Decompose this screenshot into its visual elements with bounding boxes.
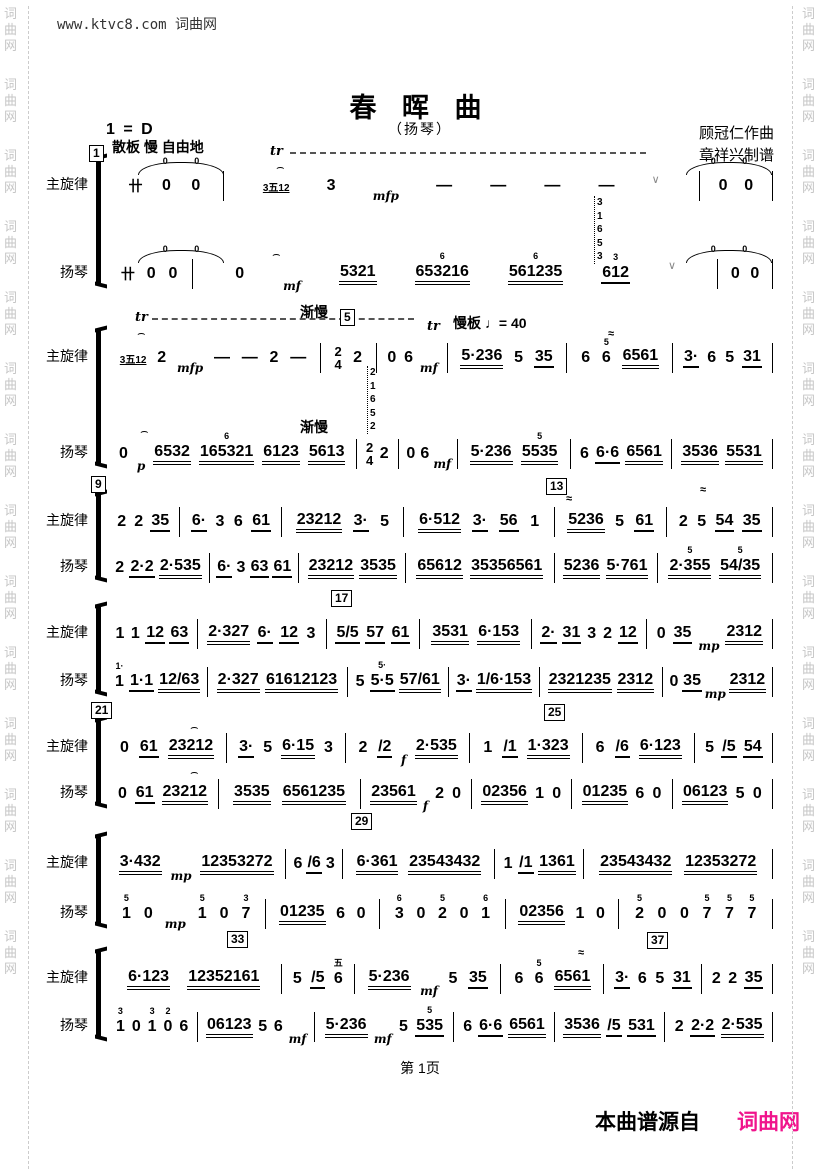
note-group: 0 — [451, 785, 462, 803]
note-group: 3 — [215, 513, 226, 531]
note-group: 12353272 — [684, 853, 757, 875]
note-group: 0 — [718, 177, 729, 195]
note-group: 0 — [652, 785, 663, 803]
note-group: 6·123 — [639, 737, 682, 759]
note-group: 5 — [724, 349, 735, 367]
barline — [672, 779, 673, 809]
barline — [398, 439, 399, 469]
measure: 35365531 — [673, 443, 771, 465]
measure: 0612350 — [674, 783, 771, 805]
note-group: 5 — [704, 739, 715, 757]
part-label: 主旋律 — [0, 967, 88, 987]
trill-mark: tr — [427, 319, 440, 334]
note-group: 6·512 — [418, 511, 461, 533]
arpeggio-digit: 2 — [370, 366, 376, 380]
part-label: 扬琴 — [0, 902, 88, 922]
yangqin-line: 扬琴061232123535656123523561f2002356100123… — [0, 774, 840, 814]
barline — [701, 964, 702, 994]
measure: 3五122mfp——2— — [108, 349, 319, 367]
note-group: 0 — [356, 905, 367, 923]
note-group: 3535 — [233, 783, 271, 805]
barline — [666, 507, 667, 537]
barline — [281, 964, 282, 994]
note-group: 1 — [574, 905, 585, 923]
note-group: 12353272 — [200, 853, 273, 875]
watermark-char: 词 — [4, 219, 28, 235]
note-group: 25 — [634, 905, 645, 923]
above-note-digit: 1· — [115, 662, 123, 672]
note-group: 15 — [121, 905, 132, 923]
note-group: 25 — [437, 905, 448, 923]
measure: 00 — [719, 265, 771, 283]
note-group: 2 — [727, 970, 738, 988]
note-group: 12352161 — [187, 968, 260, 990]
melody-line: 主旋律061232123·56·1532/2f2·5351/11·3236/66… — [0, 728, 840, 768]
measure: 11·1·112/63 — [108, 671, 206, 693]
mordent-mark: ≈ — [566, 493, 571, 505]
note-group: 0 — [415, 905, 426, 923]
note-group: 5321 — [339, 263, 377, 285]
watermark-char: 曲 — [802, 22, 826, 38]
note-group: 2 — [114, 559, 125, 577]
note-group: 31 — [672, 969, 692, 989]
watermark-char: 词 — [4, 148, 28, 164]
measure: 5/55761 — [328, 624, 418, 644]
note-group: 6 — [580, 349, 591, 367]
note-group: 54 — [715, 512, 735, 532]
barline — [469, 733, 470, 763]
measure: 6561235356561 — [407, 557, 553, 579]
watermark-char: 网 — [4, 393, 28, 409]
melody-line: 主旋律1112632·3276·1235/5576135316·1532·313… — [0, 614, 840, 654]
note-group: 6· — [191, 512, 207, 532]
note-group: /5 — [310, 969, 325, 989]
note-group: 3 — [323, 739, 334, 757]
note-group: 6·123 — [127, 968, 170, 990]
note-group: 2 — [602, 625, 613, 643]
measure: 35316·153 — [421, 623, 530, 645]
note-group: 6五 — [333, 970, 344, 988]
note-group: 5 — [355, 673, 366, 691]
measure: 150mp15073 — [108, 905, 264, 923]
watermark-char: 曲 — [4, 306, 28, 322]
barline — [285, 849, 286, 879]
above-note-digit: 6 — [533, 252, 538, 262]
part-label: 扬琴 — [0, 1015, 88, 1035]
barline — [571, 779, 572, 809]
measure: 6·36361 — [211, 558, 297, 578]
watermark-char: 曲 — [802, 235, 826, 251]
note-group: 02356 — [518, 903, 565, 925]
measure: 35356561235 — [220, 783, 359, 805]
note-group: 5236 — [567, 511, 605, 533]
note-group: 5·761 — [606, 557, 649, 579]
barline — [531, 619, 532, 649]
trill-wavy-line — [152, 318, 414, 320]
dash-note: — — [289, 349, 307, 367]
stave-measures: 22·22·5356·36361232123535656123535656152… — [108, 548, 774, 588]
arpeggio-digit: 6 — [370, 393, 376, 407]
fermata-mark: ⌢ — [137, 325, 146, 341]
harmonic-circles: 0 0 — [139, 244, 223, 254]
dynamic-marking: mfp — [177, 361, 203, 375]
measure: 6·5123·561 — [405, 511, 553, 533]
composer-credit: 顾冠仁作曲 — [699, 123, 774, 145]
barline — [356, 439, 357, 469]
measure: 2/2f2·535 — [347, 737, 469, 759]
note-group: 3· — [353, 512, 369, 532]
note-group: 6·6 — [478, 1017, 503, 1037]
note-group: 3 — [586, 625, 597, 643]
breath-mark: ∨ — [668, 259, 676, 272]
note-group: /6 — [306, 854, 321, 874]
note-group: 11· — [114, 673, 125, 691]
measure: 035mp2312 — [648, 623, 771, 645]
note-group: 6 — [403, 349, 414, 367]
note-group: 3·432 — [119, 853, 162, 875]
barline — [582, 733, 583, 763]
measure: 5·23655355 — [459, 443, 568, 465]
note-group: 6·15 — [281, 737, 315, 759]
dynamic-marking: mp — [170, 869, 191, 883]
rehearsal-number: 37 — [647, 932, 668, 949]
barline — [403, 507, 404, 537]
note-group: 02356 — [481, 783, 528, 805]
measure: 1/11361 — [496, 853, 582, 875]
tempo-marking: 散板 慢 自由地 — [112, 137, 204, 157]
watermark-char: 网 — [4, 819, 28, 835]
barline — [218, 779, 219, 809]
note-group: 0 — [657, 905, 668, 923]
watermark-char: 网 — [802, 819, 826, 835]
dynamic-marking: f — [401, 753, 406, 767]
above-note-digit: 5· — [378, 661, 386, 671]
note-group: 0 — [219, 905, 230, 923]
measure: 232123535 — [300, 557, 404, 579]
dynamic-marking: mp — [698, 639, 719, 653]
trill-wavy-line — [290, 152, 646, 154]
above-note-digit: 5 — [738, 546, 743, 556]
note-group: 6561 — [554, 968, 592, 990]
note-group: 35 — [682, 672, 702, 692]
watermark-char: 曲 — [802, 93, 826, 109]
harmonic-tie: 0 0 — [686, 162, 772, 175]
above-note-digit: 5 — [749, 894, 754, 904]
above-note-digit: 5 — [687, 546, 692, 556]
watermark-char: 词 — [802, 219, 826, 235]
stave-measures: 061232123·56·1532/2f2·5351/11·3236/66·12… — [108, 728, 774, 768]
measure: 3·6531 — [674, 348, 771, 368]
note-group: 5 — [262, 739, 273, 757]
note-group: 2·535 — [415, 737, 458, 759]
note-group: 6 — [595, 739, 606, 757]
harmonic-tie: 0 0 — [138, 250, 224, 263]
measure: 0123560 — [267, 903, 378, 925]
note-group: 6 — [419, 445, 430, 463]
scrape-mark: 卄 — [121, 264, 135, 284]
note-group: 61612123 — [265, 671, 338, 693]
brand-link[interactable]: 词曲网 — [737, 1106, 800, 1136]
measure: 5·236mf535 — [356, 968, 499, 990]
watermark-char: 词 — [802, 77, 826, 93]
yangqin-line: 扬琴150mp150730123560360250160235610250075… — [0, 894, 840, 934]
note-group: 2 — [379, 445, 390, 463]
measure: 232123·5 — [283, 511, 402, 533]
watermark-char: 网 — [802, 393, 826, 409]
note-group: 0 — [752, 785, 763, 803]
rehearsal-number: 21 — [91, 702, 112, 719]
note-group: 5·236 — [368, 968, 411, 990]
measure: 23212352312 — [541, 671, 661, 693]
note-group: 12 — [145, 624, 165, 644]
note-group: 0 — [143, 905, 154, 923]
barline — [354, 964, 355, 994]
note-group: 13 — [115, 1018, 126, 1036]
note-group: 65 — [601, 349, 612, 367]
note-group: 5531 — [725, 443, 763, 465]
mordent-mark: ≈ — [608, 328, 613, 340]
note-group: 1 — [503, 855, 514, 873]
note-group: 23212 — [162, 783, 209, 805]
barline — [326, 619, 327, 649]
part-label: 主旋律 — [0, 174, 88, 194]
measure: 卄00 — [108, 264, 191, 284]
measure: 22·22·535 — [666, 1016, 771, 1038]
watermark-char: 词 — [4, 77, 28, 93]
note-group: 3· — [472, 512, 488, 532]
barline — [226, 733, 227, 763]
barline — [603, 964, 604, 994]
note-group: 35 — [744, 969, 764, 989]
note-group: 6·361 — [356, 853, 399, 875]
measure: 卄00 — [108, 176, 222, 196]
note-group: 65 — [534, 970, 545, 988]
watermark-char: 曲 — [4, 377, 28, 393]
rehearsal-number: 33 — [227, 931, 248, 948]
watermark-char: 曲 — [4, 590, 28, 606]
watermark-char: 曲 — [802, 306, 826, 322]
arpeggio-chord: 31653 — [594, 196, 603, 264]
note-group: 0 — [167, 265, 178, 283]
note-group: 0 — [117, 785, 128, 803]
measure: 3·56·153 — [228, 737, 344, 759]
stave-measures: 150mp15073012356036025016023561025007575… — [108, 894, 774, 934]
barline — [197, 1012, 198, 1042]
barline — [419, 619, 420, 649]
watermark-char: 网 — [4, 322, 28, 338]
note-group: 531 — [627, 1017, 656, 1037]
measure: 0123560 — [573, 783, 670, 805]
dynamic-marking: mp — [705, 687, 726, 701]
measure: 3·1/6·153 — [450, 671, 538, 693]
barline — [179, 507, 180, 537]
note-group: 2 — [674, 1018, 685, 1036]
harmonic-circles: 0 0 — [687, 244, 771, 254]
note-group: /1 — [502, 738, 517, 758]
note-group: 5·55· — [370, 672, 395, 692]
barline — [657, 553, 658, 583]
measure: 2·32761612123 — [209, 671, 345, 693]
barline — [223, 171, 224, 201]
note-group: 5 — [257, 1018, 268, 1036]
barline — [554, 553, 555, 583]
melody-line: 主旋律3五122mfp——2—24206mf5·23653566565613·6… — [0, 338, 840, 378]
measure: 2500757575 — [620, 905, 771, 923]
dash-note: — — [597, 177, 615, 195]
barline — [772, 849, 773, 879]
dynamic-marking: mf — [283, 279, 301, 293]
measure: 6/66·123 — [584, 737, 693, 759]
time-signature: 24 — [334, 345, 341, 371]
note-group: 6 — [579, 445, 590, 463]
above-note-digit: 5 — [427, 1006, 432, 1016]
note-group: 0 — [234, 265, 245, 283]
measure: 06mf — [400, 445, 456, 463]
barline — [298, 553, 299, 583]
arpeggio-digit: 3 — [597, 196, 603, 210]
barline — [447, 343, 448, 373]
barline — [347, 667, 348, 697]
note-group: 65612 — [416, 557, 463, 579]
note-group: 6 — [706, 349, 717, 367]
note-group: 0 — [656, 625, 667, 643]
rehearsal-number: 9 — [91, 476, 106, 493]
arpeggio-digit: 3 — [597, 250, 603, 264]
measure: 36025016 — [381, 905, 504, 923]
barline — [664, 1012, 665, 1042]
fermata-mark: ⌢ — [140, 423, 149, 439]
source-attribution: 本曲谱源自 — [595, 1106, 700, 1136]
yangqin-line: 扬琴22·22·5356·363612321235356561235356561… — [0, 548, 840, 588]
note-group: 6· — [216, 558, 232, 578]
barline — [772, 171, 773, 201]
above-note-digit: 5 — [537, 959, 542, 969]
note-group: 5 — [513, 349, 524, 367]
arpeggio-chord: 21652 — [367, 366, 376, 434]
note-group: 0 — [749, 265, 760, 283]
watermark-char: 词 — [4, 6, 28, 22]
note-group: 6 — [273, 1018, 284, 1036]
yangqin-line: 扬琴130130260612356mf5·236mf5535566·665613… — [0, 1007, 840, 1047]
measure: 2235 — [108, 512, 178, 532]
time-signature: 24 — [366, 441, 373, 467]
barline — [699, 171, 700, 201]
note-group: 5 — [696, 513, 707, 531]
barline — [320, 343, 321, 373]
barline — [583, 849, 584, 879]
part-label: 扬琴 — [0, 262, 88, 282]
barline — [772, 964, 773, 994]
fermata-mark: ⌢ — [190, 719, 199, 735]
barline — [772, 619, 773, 649]
arpeggio-digit: 2 — [370, 420, 376, 434]
dynamic-marking: f — [423, 799, 428, 813]
note-group: 35 — [534, 348, 554, 368]
above-note-digit: 5 — [704, 894, 709, 904]
note-group: 1 — [529, 513, 540, 531]
note-group: 6 — [462, 1018, 473, 1036]
watermark-group: 词曲网 — [4, 290, 28, 338]
note-group: 06123 — [206, 1016, 253, 1038]
note-group: 36 — [394, 905, 405, 923]
note-group: 2·2 — [129, 558, 154, 578]
rehearsal-number: 13 — [546, 478, 567, 495]
harmonic-tie: 0 0 — [138, 162, 224, 175]
arpeggio-digit: 1 — [370, 380, 376, 394]
note-group: 06123 — [682, 783, 729, 805]
note-group: 5355 — [415, 1017, 444, 1037]
arpeggio-digit: 6 — [597, 223, 603, 237]
note-group: 73 — [241, 905, 252, 923]
stave-measures: 0p653216532166123561324206mf5·2365535566… — [108, 434, 774, 474]
measure: 5·236mf55355 — [316, 1016, 452, 1038]
measure: 2·3276·123 — [199, 623, 325, 645]
note-group: 31 — [742, 348, 762, 368]
note-group: 13 — [147, 1018, 158, 1036]
note-group: 0 — [146, 265, 157, 283]
measure: 255435 — [668, 512, 771, 532]
measure: 2·313212 — [533, 624, 644, 644]
note-group: 61 — [251, 512, 271, 532]
note-group: 2 — [133, 513, 144, 531]
note-group: 5 — [398, 1018, 409, 1036]
barline — [448, 667, 449, 697]
barline — [376, 343, 377, 373]
rehearsal-number: 25 — [544, 704, 565, 721]
note-group: 2312 — [617, 671, 655, 693]
measure: 22·22·535 — [108, 557, 208, 579]
dash-note: — — [241, 349, 259, 367]
barline — [694, 733, 695, 763]
barline — [453, 1012, 454, 1042]
measure: 6656561 — [568, 347, 671, 369]
note-group: 0 — [551, 785, 562, 803]
watermark-char: 曲 — [4, 235, 28, 251]
note-group: 0 — [405, 445, 416, 463]
note-group: 23212 — [168, 737, 215, 759]
barline — [494, 849, 495, 879]
barline — [471, 779, 472, 809]
above-note-digit: 6 — [440, 252, 445, 262]
measure: 06123212 — [108, 737, 225, 759]
measure: 2235 — [703, 969, 771, 989]
harmonic-circles: 0 0 — [687, 156, 771, 166]
barline — [566, 343, 567, 373]
watermark-char: 曲 — [4, 93, 28, 109]
above-note-digit: 3 — [613, 253, 618, 263]
note-group: 2· — [540, 624, 556, 644]
barline — [207, 667, 208, 697]
measure: 3536/5531 — [556, 1016, 663, 1038]
note-group: 5 — [292, 970, 303, 988]
note-group: 63 — [169, 624, 189, 644]
note-group: 1653216 — [199, 443, 254, 465]
note-group: 23543432 — [408, 853, 481, 875]
stave-measures: 11·1·112/632·3276161212355·55·57/613·1/6… — [108, 662, 774, 702]
note-group: /1 — [518, 854, 533, 874]
rehearsal-number: 5 — [340, 309, 355, 326]
note-group: 56 — [499, 512, 519, 532]
barline — [379, 899, 380, 929]
above-note-digit: 6 — [483, 894, 488, 904]
note-group: 35 — [150, 512, 170, 532]
above-note-digit: 3 — [118, 1007, 123, 1017]
note-group: 0 — [679, 905, 690, 923]
note-group: 55355 — [521, 443, 559, 465]
watermark-char: 网 — [802, 322, 826, 338]
note-group: 6 — [292, 855, 303, 873]
measure: 5/56五 — [283, 969, 354, 989]
